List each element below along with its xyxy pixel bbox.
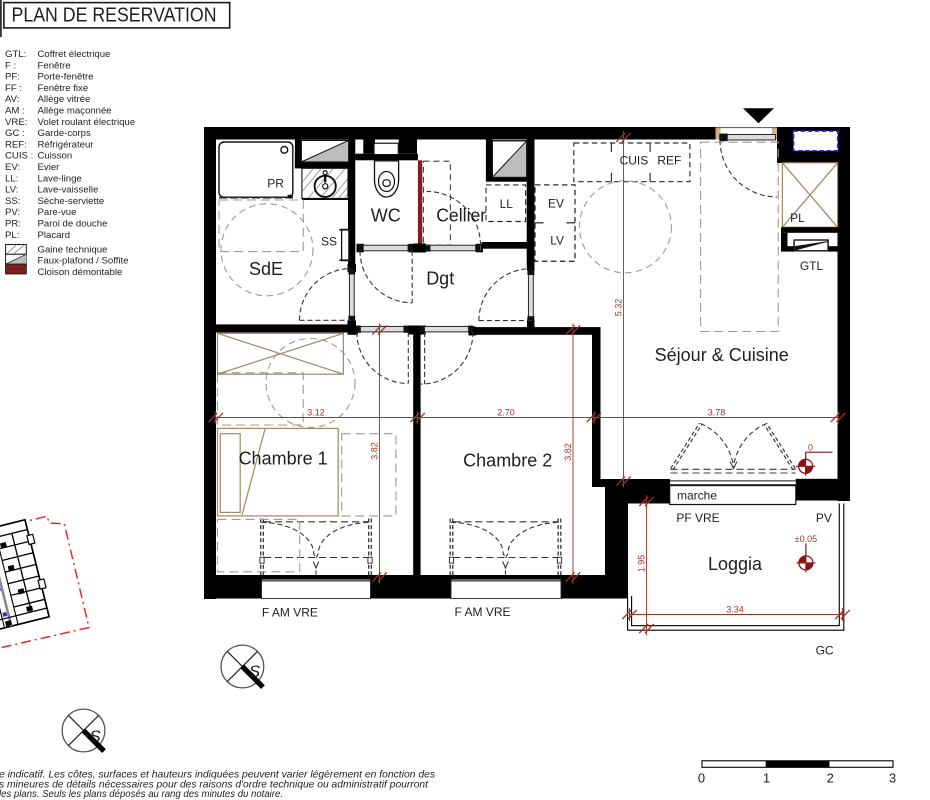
- svg-text:Dgt: Dgt: [426, 269, 454, 289]
- svg-text:PV:: PV:: [5, 207, 20, 218]
- svg-text:Placard: Placard: [38, 230, 71, 241]
- svg-text:AV:: AV:: [5, 94, 19, 105]
- svg-text:3: 3: [889, 771, 896, 786]
- svg-text:LL:: LL:: [5, 173, 18, 184]
- svg-text:SS: SS: [321, 235, 337, 249]
- svg-text:PR:: PR:: [5, 219, 21, 230]
- svg-text:les plans. Seuls les plans dép: les plans. Seuls les plans déposés au ra…: [0, 789, 283, 800]
- svg-text:0: 0: [808, 442, 813, 452]
- svg-text:PR: PR: [267, 177, 284, 191]
- svg-text:Volet roulant électrique: Volet roulant électrique: [38, 117, 136, 128]
- svg-text:LL: LL: [500, 197, 514, 211]
- svg-text:1.95: 1.95: [636, 555, 646, 573]
- svg-text:Cuisson: Cuisson: [38, 151, 73, 162]
- svg-text:Faux-plafond / Soffite: Faux-plafond / Soffite: [38, 256, 129, 267]
- svg-text:CUIS :: CUIS :: [5, 151, 33, 162]
- svg-text:Fenêtre fixe: Fenêtre fixe: [38, 83, 89, 94]
- svg-text:5.32: 5.32: [613, 299, 623, 317]
- svg-text:EV:: EV:: [5, 162, 20, 173]
- svg-text:Porte-fenêtre: Porte-fenêtre: [38, 72, 94, 83]
- svg-text:Paroi de douche: Paroi de douche: [38, 219, 108, 230]
- svg-text:LV:: LV:: [5, 185, 18, 196]
- svg-text:2.70: 2.70: [497, 407, 515, 417]
- svg-text:3.78: 3.78: [708, 407, 726, 417]
- svg-text:GC: GC: [816, 643, 834, 657]
- svg-text:PL: PL: [790, 211, 805, 225]
- svg-text:Séjour & Cuisine: Séjour & Cuisine: [655, 345, 789, 365]
- svg-text:REF:: REF:: [5, 139, 27, 150]
- svg-text:Lave-vaisselle: Lave-vaisselle: [38, 185, 99, 196]
- svg-text:Gaine technique: Gaine technique: [38, 244, 108, 255]
- svg-text:Garde-corps: Garde-corps: [38, 128, 92, 139]
- svg-text:Cloison démontable: Cloison démontable: [38, 267, 123, 278]
- svg-text:3.82: 3.82: [563, 443, 573, 461]
- svg-text:S: S: [89, 727, 101, 746]
- svg-text:PLAN DE RESERVATION: PLAN DE RESERVATION: [12, 4, 217, 27]
- svg-text:Evier: Evier: [38, 162, 61, 173]
- svg-text:SS:: SS:: [5, 196, 20, 207]
- svg-text:Lave-linge: Lave-linge: [38, 173, 82, 184]
- svg-text:2: 2: [827, 771, 834, 786]
- svg-text:1: 1: [763, 771, 770, 786]
- svg-text:F AM VRE: F AM VRE: [454, 605, 510, 619]
- svg-text:S: S: [249, 662, 261, 681]
- svg-text:3.34: 3.34: [726, 605, 744, 615]
- svg-text:±0.05: ±0.05: [795, 534, 817, 544]
- svg-text:Coffret électrique: Coffret électrique: [38, 49, 111, 60]
- svg-text:GC :: GC :: [5, 128, 25, 139]
- svg-text:CUIS: CUIS: [620, 154, 649, 168]
- svg-text:PF VRE: PF VRE: [676, 511, 719, 525]
- svg-text:REF: REF: [657, 154, 681, 168]
- svg-text:PF:: PF:: [5, 72, 20, 83]
- svg-text:F AM VRE: F AM VRE: [262, 606, 318, 620]
- svg-text:Pare-vue: Pare-vue: [38, 207, 77, 218]
- svg-text:LV: LV: [550, 234, 564, 248]
- svg-text:Chambre 2: Chambre 2: [463, 451, 552, 471]
- svg-text:Allège maçonnée: Allège maçonnée: [38, 106, 112, 117]
- svg-text:3.12: 3.12: [307, 407, 325, 417]
- svg-text:Sèche-serviette: Sèche-serviette: [38, 196, 105, 207]
- svg-text:SdE: SdE: [249, 259, 283, 279]
- svg-text:Réfrigérateur: Réfrigérateur: [38, 139, 95, 150]
- svg-text:GTL:: GTL:: [5, 49, 26, 60]
- svg-text:F :: F :: [5, 60, 16, 71]
- svg-text:Allège vitrée: Allège vitrée: [38, 94, 91, 105]
- svg-text:PL:: PL:: [5, 230, 19, 241]
- svg-text:Fenêtre: Fenêtre: [38, 60, 71, 71]
- svg-text:Chambre 1: Chambre 1: [239, 448, 328, 468]
- svg-text:Loggia: Loggia: [708, 554, 763, 574]
- svg-text:EV: EV: [548, 197, 564, 211]
- svg-text:GTL: GTL: [800, 259, 824, 273]
- svg-text:PV: PV: [816, 511, 832, 525]
- svg-text:Cellier: Cellier: [436, 206, 486, 226]
- svg-text:marche: marche: [677, 489, 717, 503]
- svg-text:VRE:: VRE:: [5, 117, 27, 128]
- svg-text:FF :: FF :: [5, 83, 22, 94]
- svg-text:3.82: 3.82: [369, 442, 379, 460]
- svg-text:AM :: AM :: [5, 106, 25, 117]
- svg-text:0: 0: [698, 771, 705, 786]
- svg-text:WC: WC: [371, 206, 401, 226]
